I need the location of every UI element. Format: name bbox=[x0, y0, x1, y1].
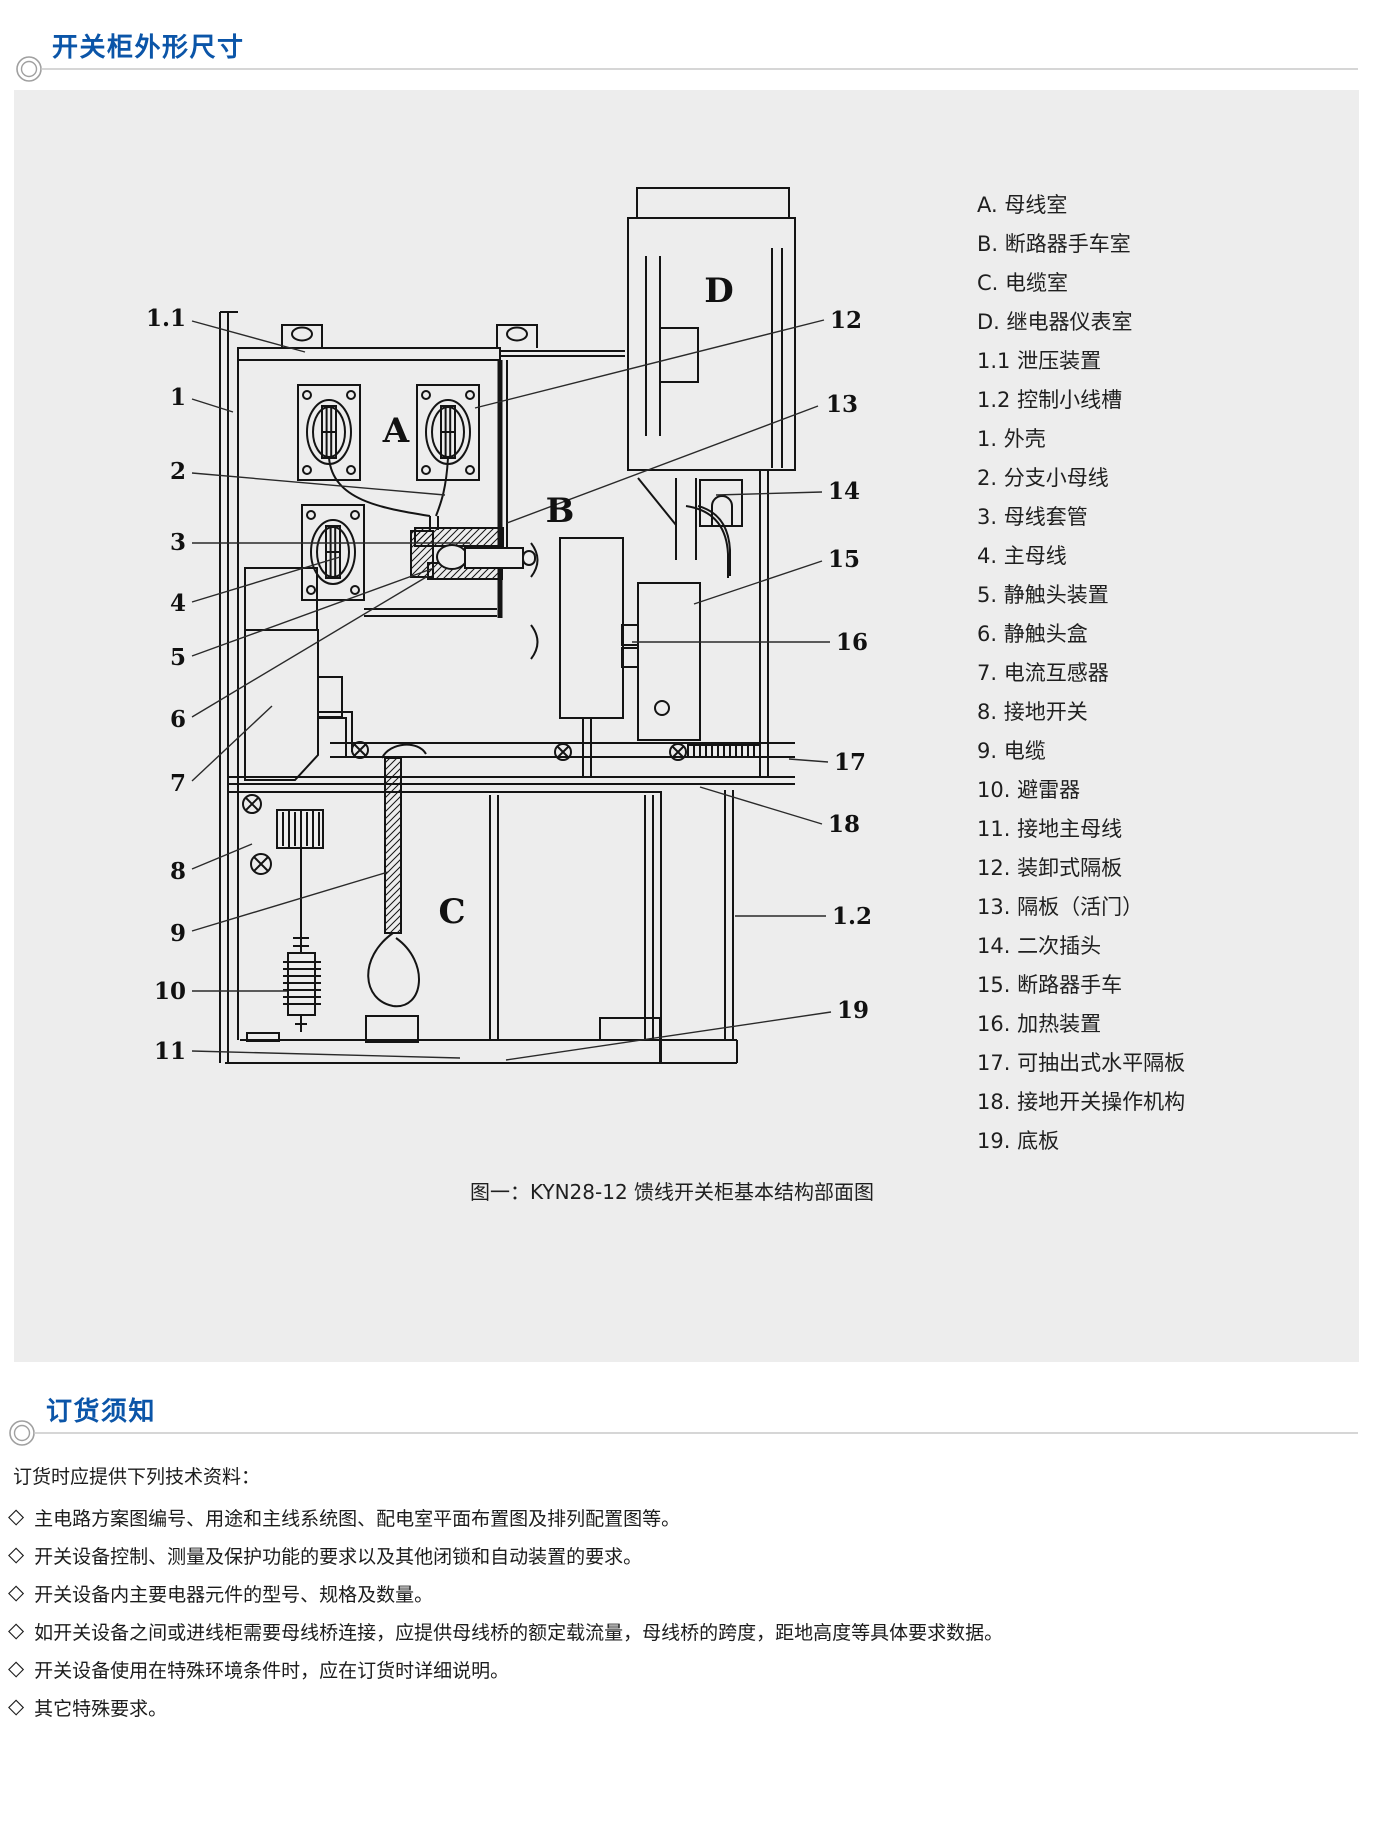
callout-label: 14 bbox=[828, 478, 860, 505]
double-circle-icon bbox=[17, 57, 41, 81]
legend-item: 4. 主母线 bbox=[977, 537, 1185, 576]
compartment-label-d: D bbox=[704, 271, 733, 311]
callout-label: 19 bbox=[837, 997, 869, 1024]
legend-item: 1.1 泄压装置 bbox=[977, 342, 1185, 381]
compartment-label-a: A bbox=[382, 411, 410, 451]
callout-label: 17 bbox=[834, 749, 866, 776]
diamond-bullet-icon: ◇ bbox=[8, 1618, 24, 1642]
legend-item: 6. 静触头盒 bbox=[977, 615, 1185, 654]
ordering-intro: 订货时应提供下列技术资料： bbox=[13, 1462, 260, 1489]
double-circle-icon bbox=[10, 1421, 34, 1445]
legend-item: D. 继电器仪表室 bbox=[977, 303, 1185, 342]
callout-label: 7 bbox=[170, 770, 186, 797]
ordering-item: ◇ 如开关设备之间或进线柜需要母线桥连接，应提供母线桥的额定载流量，母线桥的跨度… bbox=[8, 1618, 1003, 1645]
legend-item: 13. 隔板（活门） bbox=[977, 888, 1185, 927]
figure-panel: 1.1 1 2 3 4 5 6 7 8 9 10 11 12 13 14 15 … bbox=[14, 90, 1359, 1362]
callout-label: 4 bbox=[170, 590, 186, 617]
ordering-item: ◇ 开关设备内主要电器元件的型号、规格及数量。 bbox=[8, 1580, 433, 1607]
surge-arrester bbox=[283, 930, 321, 1032]
callout-label: 1 bbox=[170, 384, 186, 411]
callout-label: 18 bbox=[828, 811, 860, 838]
callout-label: 1.1 bbox=[146, 305, 186, 332]
legend-item: 18. 接地开关操作机构 bbox=[977, 1083, 1185, 1122]
legend-item: 14. 二次插头 bbox=[977, 927, 1185, 966]
diamond-bullet-icon: ◇ bbox=[8, 1694, 24, 1718]
cabinet-structure bbox=[220, 188, 795, 1063]
legend-item: 12. 装卸式隔板 bbox=[977, 849, 1185, 888]
compartment-label-b: B bbox=[546, 491, 575, 531]
left-callout-labels: 1.1 1 2 3 4 5 6 7 8 9 10 11 bbox=[146, 305, 186, 1065]
bushing-lower bbox=[302, 505, 364, 600]
breaker-handcart bbox=[560, 470, 768, 777]
ordering-item-text: 开关设备使用在特殊环境条件时，应在订货时详细说明。 bbox=[34, 1656, 509, 1683]
diamond-bullet-icon: ◇ bbox=[8, 1580, 24, 1604]
diamond-bullet-icon: ◇ bbox=[8, 1504, 24, 1528]
callout-label: 12 bbox=[830, 307, 862, 334]
earthing-switch bbox=[251, 810, 323, 930]
bushing-upper-left bbox=[298, 385, 360, 480]
callout-label: 9 bbox=[170, 920, 186, 947]
legend-item: 16. 加热装置 bbox=[977, 1005, 1185, 1044]
legend-item: 1. 外壳 bbox=[977, 420, 1185, 459]
legend-item: B. 断路器手车室 bbox=[977, 225, 1185, 264]
diamond-bullet-icon: ◇ bbox=[8, 1656, 24, 1680]
ordering-item: ◇ 开关设备控制、测量及保护功能的要求以及其他闭锁和自动装置的要求。 bbox=[8, 1542, 642, 1569]
callout-label: 5 bbox=[170, 644, 186, 671]
section-rule-top bbox=[0, 55, 1373, 87]
callout-label: 13 bbox=[826, 391, 858, 418]
section-rule-bottom bbox=[0, 1418, 1373, 1450]
legend-item: 3. 母线套管 bbox=[977, 498, 1185, 537]
figure-caption: 图一：KYN28-12 馈线开关柜基本结构部面图 bbox=[272, 1176, 1072, 1205]
legend-item: 1.2 控制小线槽 bbox=[977, 381, 1185, 420]
right-callout-labels: 12 13 14 15 16 17 18 1.2 19 bbox=[826, 307, 872, 1024]
ordering-item: ◇ 其它特殊要求。 bbox=[8, 1694, 167, 1721]
callout-label: 10 bbox=[154, 978, 186, 1005]
legend-item: C. 电缆室 bbox=[977, 264, 1185, 303]
callout-label: 11 bbox=[154, 1038, 186, 1065]
callout-label: 3 bbox=[170, 529, 186, 556]
compartment-letters: A B C D bbox=[382, 271, 734, 932]
callout-label: 16 bbox=[836, 629, 868, 656]
ordering-item-text: 其它特殊要求。 bbox=[34, 1694, 167, 1721]
legend-list: A. 母线室 B. 断路器手车室 C. 电缆室 D. 继电器仪表室 1.1 泄压… bbox=[977, 186, 1185, 1161]
ordering-item-text: 如开关设备之间或进线柜需要母线桥连接，应提供母线桥的额定载流量，母线桥的跨度，距… bbox=[34, 1618, 1003, 1645]
cable bbox=[366, 758, 419, 1042]
legend-item: 5. 静触头装置 bbox=[977, 576, 1185, 615]
ordering-item-text: 开关设备控制、测量及保护功能的要求以及其他闭锁和自动装置的要求。 bbox=[34, 1542, 642, 1569]
callout-label: 1.2 bbox=[832, 903, 872, 930]
ordering-item-text: 开关设备内主要电器元件的型号、规格及数量。 bbox=[34, 1580, 433, 1607]
callout-label: 6 bbox=[170, 706, 186, 733]
diamond-bullet-icon: ◇ bbox=[8, 1542, 24, 1566]
leader-lines bbox=[192, 320, 831, 1060]
callout-label: 8 bbox=[170, 858, 186, 885]
legend-item: 2. 分支小母线 bbox=[977, 459, 1185, 498]
relay-box bbox=[628, 188, 795, 470]
legend-item: 11. 接地主母线 bbox=[977, 810, 1185, 849]
callout-label: 15 bbox=[828, 546, 860, 573]
ordering-item-text: 主电路方案图编号、用途和主线系统图、配电室平面布置图及排列配置图等。 bbox=[34, 1504, 680, 1531]
legend-item: 9. 电缆 bbox=[977, 732, 1185, 771]
legend-item: 7. 电流互感器 bbox=[977, 654, 1185, 693]
legend-item: 17. 可抽出式水平隔板 bbox=[977, 1044, 1185, 1083]
legend-item: A. 母线室 bbox=[977, 186, 1185, 225]
callout-label: 2 bbox=[170, 458, 186, 485]
legend-item: 15. 断路器手车 bbox=[977, 966, 1185, 1005]
ordering-item: ◇ 主电路方案图编号、用途和主线系统图、配电室平面布置图及排列配置图等。 bbox=[8, 1504, 680, 1531]
compartment-label-c: C bbox=[438, 892, 465, 932]
legend-item: 10. 避雷器 bbox=[977, 771, 1185, 810]
ordering-item: ◇ 开关设备使用在特殊环境条件时，应在订货时详细说明。 bbox=[8, 1656, 509, 1683]
legend-item: 8. 接地开关 bbox=[977, 693, 1185, 732]
legend-item: 19. 底板 bbox=[977, 1122, 1185, 1161]
